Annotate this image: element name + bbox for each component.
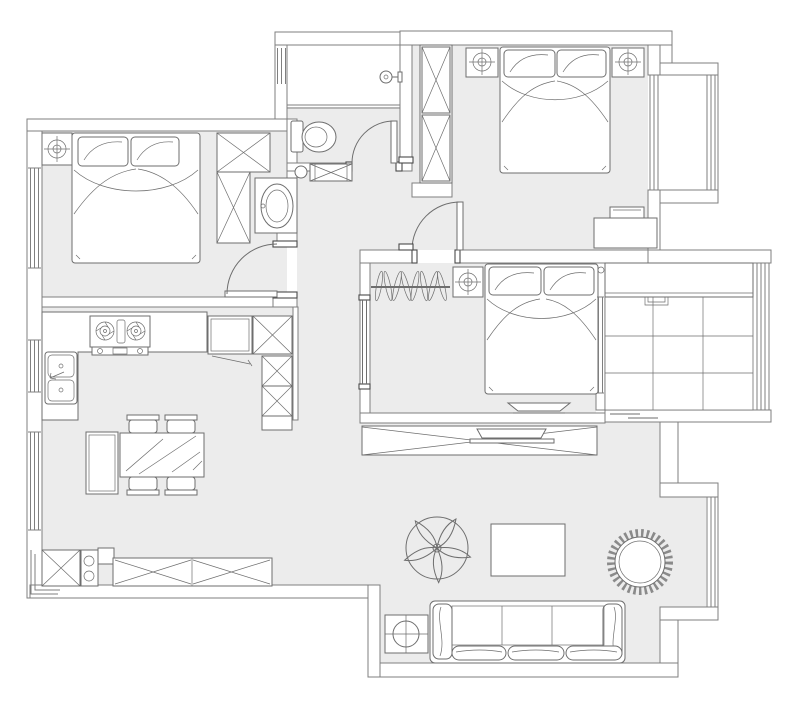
long-x-cabinet bbox=[113, 558, 272, 586]
door-leaf bbox=[391, 121, 397, 163]
sideboard bbox=[86, 432, 118, 494]
wall-balcony-north bbox=[648, 250, 771, 263]
pillow-right bbox=[557, 50, 606, 77]
wall-living-southeast-corner bbox=[660, 607, 718, 620]
pillow-left bbox=[78, 137, 128, 166]
pantry-column bbox=[262, 356, 292, 430]
toilet-tank bbox=[291, 121, 303, 152]
chair bbox=[165, 477, 197, 495]
wall-middle-bedroom-west bbox=[360, 263, 370, 413]
wall-middle-bedroom-north-west bbox=[360, 250, 412, 263]
storage-counter bbox=[605, 263, 753, 297]
sofa-3-seat bbox=[430, 601, 625, 663]
door-leaf bbox=[225, 291, 277, 297]
gas-stove bbox=[90, 316, 150, 355]
coffee-table bbox=[491, 524, 565, 576]
toilet-bowl bbox=[302, 122, 336, 152]
wall-kitchen-east bbox=[293, 307, 298, 420]
dining-table bbox=[120, 433, 204, 477]
floor-hall-lower bbox=[297, 255, 360, 423]
chair bbox=[165, 415, 197, 433]
wall-tv bbox=[360, 413, 605, 423]
bay-window-top-band bbox=[660, 63, 718, 75]
wall-bathroom-north bbox=[275, 32, 412, 45]
pillow-right bbox=[544, 267, 594, 295]
laptop bbox=[610, 207, 644, 218]
wardrobe-x-units bbox=[420, 45, 452, 183]
wall-master-east-upper bbox=[648, 45, 660, 75]
corner-window-glazing bbox=[707, 497, 718, 607]
pillow-left bbox=[489, 267, 541, 295]
balcony bbox=[605, 263, 753, 410]
toilet bbox=[291, 121, 336, 152]
double-sink bbox=[45, 352, 77, 404]
x-cabinet bbox=[253, 316, 292, 354]
sofa-back-cushions bbox=[452, 646, 622, 660]
wall-dining-south bbox=[30, 585, 368, 598]
double-bed bbox=[500, 47, 610, 173]
tv bbox=[470, 429, 554, 443]
wall-living-west-step bbox=[368, 585, 380, 677]
wall-living-east-step bbox=[660, 483, 718, 497]
wall-middle-bedroom-north-east bbox=[460, 250, 660, 263]
wall-hall-east bbox=[400, 45, 412, 163]
double-bed bbox=[72, 133, 200, 263]
wall-bedroom-left-south bbox=[42, 297, 273, 307]
bay-window-glazing bbox=[650, 75, 718, 190]
wall-top-left bbox=[27, 119, 287, 131]
bay-window-bottom-band bbox=[660, 190, 718, 203]
side-table bbox=[385, 615, 428, 653]
pillow-right bbox=[131, 137, 179, 166]
chair bbox=[127, 415, 159, 433]
wall-master-north bbox=[400, 31, 672, 45]
double-bed bbox=[485, 264, 598, 394]
floor-plan-drawing: apartment-floor-plan bbox=[0, 0, 800, 705]
floor-plan-page: apartment-floor-plan bbox=[0, 0, 800, 705]
shower-head-icon bbox=[380, 71, 402, 83]
wall-stub-under-closet bbox=[412, 183, 452, 197]
wall-living-south bbox=[368, 663, 678, 677]
pillow-left bbox=[504, 50, 555, 77]
door-leaf bbox=[457, 202, 463, 250]
balcony-window-glazing bbox=[757, 263, 769, 410]
wash-basin bbox=[255, 178, 297, 233]
wall-balcony-south bbox=[605, 410, 771, 422]
chair bbox=[127, 477, 159, 495]
